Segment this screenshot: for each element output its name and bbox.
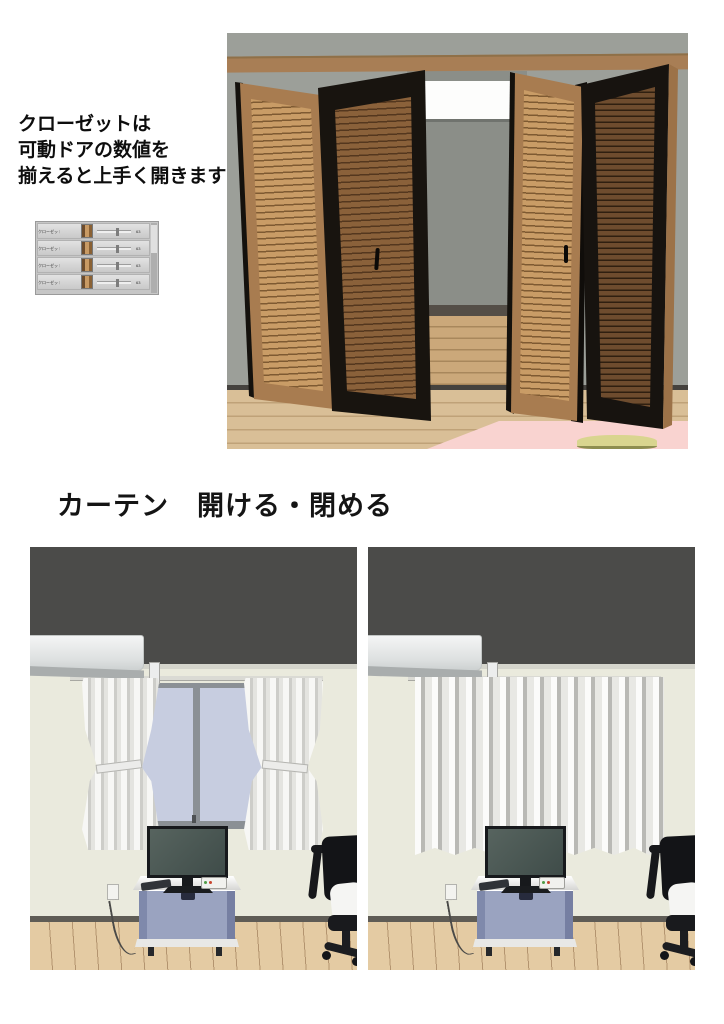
wall-outlet: [445, 884, 457, 900]
closet-caption-line3: 揃えると上手く開きます: [18, 164, 226, 190]
tv-cart-handle: [519, 892, 533, 900]
cart-leg: [486, 947, 492, 956]
slider-value: 63: [136, 280, 143, 285]
chair-caster: [690, 957, 695, 966]
tv-cart-base: [135, 939, 239, 947]
tv-cart-handle: [181, 892, 195, 900]
slider-handle[interactable]: [116, 262, 119, 270]
page: クローゼットは 可動ドアの数値を 揃えると上手く開きます クローゼットドア左端 …: [0, 0, 724, 1024]
slider-track[interactable]: [97, 281, 131, 284]
tv-screen: [147, 826, 228, 878]
window-lock: [192, 815, 196, 823]
floor-cushion: [577, 435, 657, 449]
air-conditioner: [368, 635, 482, 671]
console-button-red: [547, 881, 550, 884]
chair-armrest-post: [646, 849, 660, 900]
closet-interior-light: [413, 81, 521, 119]
chair-caster: [322, 951, 331, 960]
door-handle: [564, 245, 568, 263]
slider-handle[interactable]: [116, 279, 119, 287]
slider-row-door-left[interactable]: クローゼットドア左 63: [37, 240, 150, 256]
door-thumbnail-icon: [81, 241, 93, 255]
console-button-green: [204, 881, 207, 884]
closet-caption-line1: クローゼットは: [18, 112, 226, 138]
tv-stand-neck: [520, 878, 531, 887]
cart-leg: [554, 947, 560, 956]
slider-value: 63: [136, 246, 143, 251]
chair-caster: [660, 951, 669, 960]
slider-value: 63: [136, 229, 143, 234]
tv-stand-neck: [182, 878, 193, 887]
slider-handle[interactable]: [116, 245, 119, 253]
slider-track[interactable]: [97, 230, 131, 233]
office-chair-seat: [328, 915, 357, 931]
console-button-red: [209, 881, 212, 884]
console-button-green: [542, 881, 545, 884]
closet-render: [227, 33, 688, 449]
slider-row-door-right[interactable]: クローゼットドア右 63: [37, 274, 150, 290]
slider-handle[interactable]: [116, 228, 119, 236]
slider-value: 63: [136, 263, 143, 268]
slider-row-door-left-end[interactable]: クローゼットドア左端 63: [37, 223, 150, 239]
chair-caster: [352, 957, 357, 966]
closet-caption: クローゼットは 可動ドアの数値を 揃えると上手く開きます: [18, 112, 226, 189]
cart-leg: [216, 947, 222, 956]
door-thumbnail-icon: [81, 258, 93, 272]
door-thumbnail-icon: [81, 275, 93, 289]
tv-cart-base: [473, 939, 577, 947]
slider-label: クローゼットドア右: [38, 279, 59, 285]
curtain-heading: カーテン 開ける・閉める: [57, 484, 393, 523]
slider-track[interactable]: [97, 247, 131, 250]
room-render-curtains-closed: [368, 547, 695, 970]
slider-label: クローゼットドア左: [38, 245, 59, 251]
slider-label: クローゼットドア左端: [38, 228, 59, 234]
closet-caption-line2: 可動ドアの数値を: [18, 138, 226, 164]
room-render-curtains-open: [30, 547, 357, 970]
chair-armrest-post: [308, 849, 322, 900]
office-chair-seat: [666, 915, 695, 931]
window-mullion: [193, 687, 200, 825]
slider-row-door-right-end[interactable]: クローゼットドア右端 63: [37, 257, 150, 273]
tv-screen: [485, 826, 566, 878]
slider-label: クローゼットドア右端: [38, 262, 59, 268]
wall-outlet: [107, 884, 119, 900]
door-slider-panel: クローゼットドア左端 63 クローゼットドア左 63 クローゼットドア右端 63…: [35, 221, 159, 295]
door-thumbnail-icon: [81, 224, 93, 238]
panel-scrollbar-thumb[interactable]: [151, 225, 157, 253]
air-conditioner: [30, 635, 144, 671]
panel-scrollbar[interactable]: [151, 223, 157, 293]
closet-top-beam: [227, 53, 688, 72]
cart-leg: [148, 947, 154, 956]
slider-track[interactable]: [97, 264, 131, 267]
